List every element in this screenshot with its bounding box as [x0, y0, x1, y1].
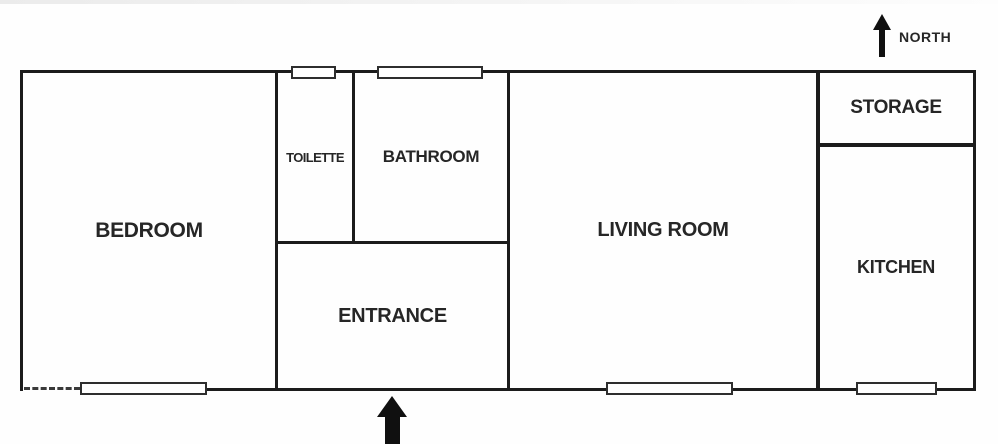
north-arrow-shaft: [879, 28, 885, 57]
bedroom-window: [80, 382, 207, 395]
entrance-arrow-shaft: [385, 415, 400, 444]
living-room-window: [606, 382, 733, 395]
wall-entrance-living-room: [507, 70, 510, 391]
wall-entrance-top: [275, 241, 510, 244]
wall-storage-kitchen: [816, 143, 976, 147]
bathroom-window: [377, 66, 483, 79]
wall-living-room-kitchen: [816, 70, 820, 391]
wall-bedroom-entrance: [275, 70, 278, 391]
north-label: NORTH: [899, 29, 951, 45]
outer-wall: [20, 70, 976, 391]
wall-toilette-bathroom: [352, 70, 355, 244]
dashed-wall-segment: [24, 387, 80, 390]
kitchen-window: [856, 382, 937, 395]
floor-plan: BEDROOM TOILETTE BATHROOM ENTRANCE LIVIN…: [0, 0, 998, 444]
entrance-arrow-icon: [377, 396, 407, 417]
top-edge-shading: [0, 0, 998, 4]
toilette-window: [291, 66, 336, 79]
